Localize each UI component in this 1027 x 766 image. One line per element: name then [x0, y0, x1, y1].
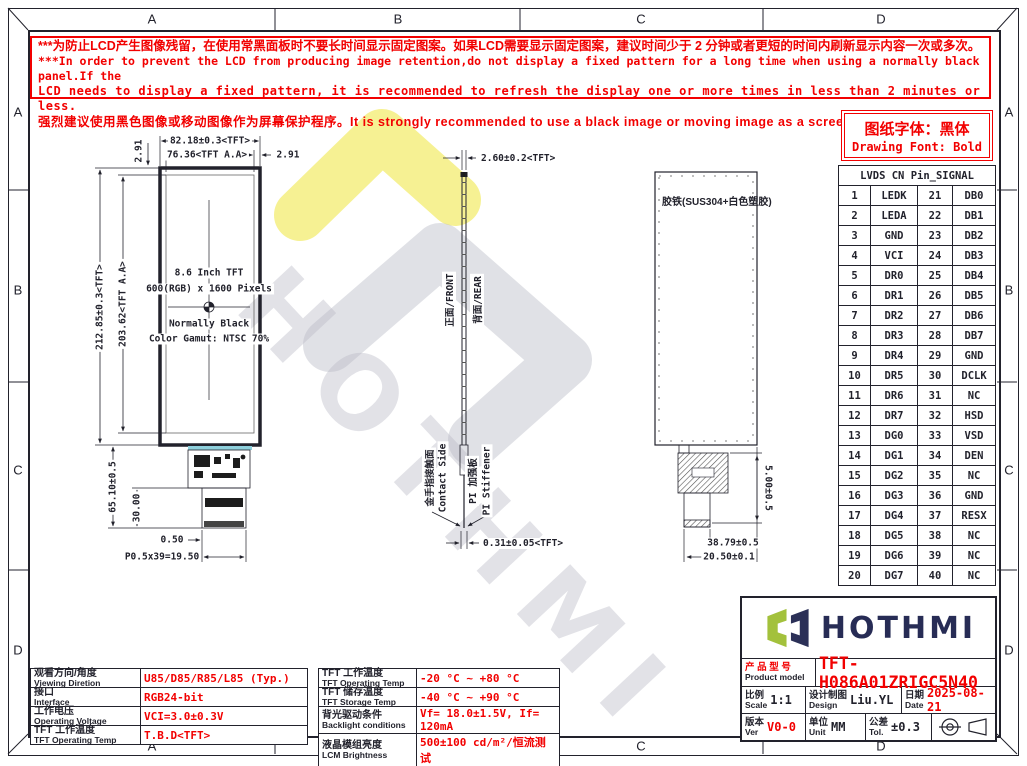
pin-row: 7DR227DB6 — [839, 306, 996, 326]
pin-signal: DR3 — [871, 326, 918, 346]
pin-no: 17 — [839, 506, 871, 526]
pin-no: 32 — [918, 406, 953, 426]
pin-no: 24 — [918, 246, 953, 266]
ver-unit-tol-row: 版本Ver V0-0 单位Unit MM 公差Tol. ±0.3 — [742, 714, 995, 740]
spec-row: TFT 工作温度TFT Operating Temp-20 °C ~ +80 °… — [319, 669, 560, 688]
rear-material-label: 胶铁(SUS304+白色塑胶) — [661, 193, 773, 208]
pin-signal: DG1 — [871, 446, 918, 466]
pin-row: 20DG740NC — [839, 566, 996, 586]
pin-row: 9DR429GND — [839, 346, 996, 366]
font-note-cn: 图纸字体：黑体 — [842, 118, 992, 139]
pin-no: 9 — [839, 346, 871, 366]
pin-no: 11 — [839, 386, 871, 406]
engineering-drawing-page: HOTHMI A B C D A B C D A B C D A B C D — [0, 0, 1027, 766]
pin-no: 6 — [839, 286, 871, 306]
brand-wordmark: HOTHMI — [821, 611, 976, 646]
product-model-value: TFT-H086A01ZRIGC5N40 — [816, 659, 995, 686]
spec-row: 背光驱动条件Backlight conditionsVf= 18.0±1.5V,… — [319, 707, 560, 734]
pin-row: 4VCI24DB3 — [839, 246, 996, 266]
pin-no: 35 — [918, 466, 953, 486]
hothmi-logo-mark-icon — [761, 603, 815, 653]
pin-row: 18DG538NC — [839, 526, 996, 546]
pin-no: 31 — [918, 386, 953, 406]
spec-row: 工作电压Operating VoltageVCI=3.0±0.3V — [31, 707, 308, 726]
pin-no: 30 — [918, 366, 953, 386]
warning-line-1: ***为防止LCD产生图像残留，在使用常黑面板时不要长时间显示固定图案。如果LC… — [38, 39, 983, 54]
pin-no: 2 — [839, 206, 871, 226]
pin-row: 3GND23DB2 — [839, 226, 996, 246]
pin-signal-table: LVDS CN Pin_SIGNAL 1LEDK21DB0 2LEDA22DB1… — [838, 165, 996, 586]
spec-value: RGB24-bit — [141, 688, 308, 707]
date-label-cn: 日期 — [905, 691, 924, 701]
pin-no: 21 — [918, 186, 953, 206]
scale-label-cn: 比例 — [745, 691, 767, 701]
image-retention-warning: ***为防止LCD产生图像残留，在使用常黑面板时不要长时间显示固定图案。如果LC… — [30, 36, 991, 99]
pin-signal: DB5 — [953, 286, 996, 306]
pin-no: 8 — [839, 326, 871, 346]
spec-label-en: LCM Brightness — [322, 751, 413, 760]
pin-signal: DCLK — [953, 366, 996, 386]
pin-signal: VCI — [871, 246, 918, 266]
pin-signal: DG0 — [871, 426, 918, 446]
unit-label-cn: 单位 — [809, 718, 828, 728]
spec-value: T.B.D<TFT> — [141, 726, 308, 745]
spec-row: TFT 工作温度TFT Operating TempT.B.D<TFT> — [31, 726, 308, 745]
dim-fpc-thickness: 0.31±0.05<TFT> — [482, 538, 564, 549]
spec-value: -40 °C ~ +90 °C — [417, 688, 560, 707]
pin-signal: VSD — [953, 426, 996, 446]
spec-value: U85/D85/R85/L85 (Typ.) — [141, 669, 308, 688]
pin-signal: HSD — [953, 406, 996, 426]
dim-thickness: 2.60±0.2<TFT> — [480, 153, 556, 164]
pin-no: 5 — [839, 266, 871, 286]
pin-row: 11DR631NC — [839, 386, 996, 406]
spec-value: 500±100 cd/m²/恒流测试 — [417, 734, 560, 766]
pin-no: 29 — [918, 346, 953, 366]
tol-label-cn: 公差 — [869, 718, 888, 728]
pin-no: 40 — [918, 566, 953, 586]
pin-no: 37 — [918, 506, 953, 526]
spec-row: 接口InterfaceRGB24-bit — [31, 688, 308, 707]
pin-signal: DEN — [953, 446, 996, 466]
spec-label-en: TFT Operating Temp — [34, 736, 137, 745]
scale-label-en: Scale — [745, 701, 767, 710]
product-model-row: 产 品 型 号Product model TFT-H086A01ZRIGC5N4… — [742, 659, 995, 687]
scale-value: 1:1 — [770, 693, 792, 707]
pin-no: 27 — [918, 306, 953, 326]
pin-signal: DG4 — [871, 506, 918, 526]
pin-signal: DR4 — [871, 346, 918, 366]
pin-row: 16DG336GND — [839, 486, 996, 506]
spec-value: -20 °C ~ +80 °C — [417, 669, 560, 688]
pin-no: 12 — [839, 406, 871, 426]
pin-no: 33 — [918, 426, 953, 446]
pin-no: 26 — [918, 286, 953, 306]
pin-no: 15 — [839, 466, 871, 486]
unit-label-en: Unit — [809, 728, 828, 737]
design-value: Liu.YL — [850, 693, 893, 707]
spec-table-middle: TFT 工作温度TFT Operating Temp-20 °C ~ +80 °… — [318, 668, 560, 766]
pin-table-header: LVDS CN Pin_SIGNAL — [839, 166, 996, 186]
pin-signal: GND — [953, 486, 996, 506]
pin-signal: DR2 — [871, 306, 918, 326]
pin-signal: NC — [953, 546, 996, 566]
pin-row: 10DR530DCLK — [839, 366, 996, 386]
spec-value: Vf= 18.0±1.5V, If= 120mA — [417, 707, 560, 734]
spec-row: 观看方向/角度Viewing DiretionU85/D85/R85/L85 (… — [31, 669, 308, 688]
pin-row: 8DR328DB7 — [839, 326, 996, 346]
third-angle-projection-icon — [939, 717, 989, 737]
pin-signal: DB7 — [953, 326, 996, 346]
company-logo: HOTHMI — [742, 598, 995, 659]
pin-signal: DR5 — [871, 366, 918, 386]
pin-signal: GND — [953, 346, 996, 366]
pin-row: 17DG437RESX — [839, 506, 996, 526]
pin-signal: NC — [953, 386, 996, 406]
pin-no: 13 — [839, 426, 871, 446]
spec-label-en: TFT Operating Temp — [322, 679, 413, 688]
pin-signal: DR6 — [871, 386, 918, 406]
pin-row: 12DR732HSD — [839, 406, 996, 426]
pin-table-title: LVDS CN Pin_SIGNAL — [839, 166, 996, 186]
pin-signal: DB6 — [953, 306, 996, 326]
spec-label-en: TFT Storage Temp — [322, 698, 413, 707]
tol-value: ±0.3 — [891, 720, 920, 734]
pin-signal: LEDK — [871, 186, 918, 206]
spec-label-en: Viewing Diretion — [34, 679, 137, 688]
warning-line-2: ***In order to prevent the LCD from prod… — [38, 54, 983, 84]
pin-no: 18 — [839, 526, 871, 546]
pin-signal: DG7 — [871, 566, 918, 586]
product-label-en: Product model — [745, 673, 805, 682]
spec-label-en: Operating Voltage — [34, 717, 137, 726]
pin-signal: DR1 — [871, 286, 918, 306]
pin-no: 19 — [839, 546, 871, 566]
pin-no: 36 — [918, 486, 953, 506]
pin-no: 23 — [918, 226, 953, 246]
pin-no: 20 — [839, 566, 871, 586]
pin-row: 19DG639NC — [839, 546, 996, 566]
pin-signal: NC — [953, 466, 996, 486]
spec-row: 液晶模组亮度LCM Brightness500±100 cd/m²/恒流测试 — [319, 734, 560, 766]
drawing-font-note: 图纸字体：黑体 Drawing Font: Bold — [841, 110, 993, 161]
pin-row: 2LEDA22DB1 — [839, 206, 996, 226]
date-label-en: Date — [905, 701, 924, 710]
pin-signal: DB4 — [953, 266, 996, 286]
pin-no: 28 — [918, 326, 953, 346]
pin-signal: DB3 — [953, 246, 996, 266]
pin-signal: RESX — [953, 506, 996, 526]
pin-row: 1LEDK21DB0 — [839, 186, 996, 206]
spec-row: TFT 储存温度TFT Storage Temp-40 °C ~ +90 °C — [319, 688, 560, 707]
pin-no: 39 — [918, 546, 953, 566]
pin-no: 34 — [918, 446, 953, 466]
pin-signal: NC — [953, 526, 996, 546]
ver-value: V0-0 — [767, 720, 796, 734]
spec-label-en: Interface — [34, 698, 137, 707]
design-label-cn: 设计制图 — [809, 691, 847, 701]
pin-row: 14DG134DEN — [839, 446, 996, 466]
spec-value: VCI=3.0±0.3V — [141, 707, 308, 726]
pin-signal: DR7 — [871, 406, 918, 426]
title-block: HOTHMI 产 品 型 号Product model TFT-H086A01Z… — [740, 596, 997, 742]
pin-signal: DB0 — [953, 186, 996, 206]
pin-signal: DB1 — [953, 206, 996, 226]
pin-row: 5DR025DB4 — [839, 266, 996, 286]
pin-signal: DB2 — [953, 226, 996, 246]
pin-no: 1 — [839, 186, 871, 206]
ver-label-en: Ver — [745, 728, 764, 737]
tol-label-en: Tol. — [869, 728, 888, 737]
pin-row: 13DG033VSD — [839, 426, 996, 446]
pin-no: 22 — [918, 206, 953, 226]
pin-signal: DG3 — [871, 486, 918, 506]
pin-row: 15DG235NC — [839, 466, 996, 486]
font-note-en: Drawing Font: Bold — [842, 140, 992, 154]
pin-signal: DG6 — [871, 546, 918, 566]
pin-no: 3 — [839, 226, 871, 246]
pin-no: 4 — [839, 246, 871, 266]
pin-signal: DR0 — [871, 266, 918, 286]
spec-label-en: Backlight conditions — [322, 721, 413, 730]
pin-no: 10 — [839, 366, 871, 386]
pin-no: 25 — [918, 266, 953, 286]
ver-label-cn: 版本 — [745, 718, 764, 728]
pin-signal: NC — [953, 566, 996, 586]
pin-signal: DG2 — [871, 466, 918, 486]
date-value: 2025-08-21 — [927, 686, 992, 714]
pin-signal: LEDA — [871, 206, 918, 226]
pin-row: 6DR126DB5 — [839, 286, 996, 306]
pin-no: 7 — [839, 306, 871, 326]
scale-design-date-row: 比例Scale 1:1 设计制图Design Liu.YL 日期Date 202… — [742, 687, 995, 714]
pin-signal: GND — [871, 226, 918, 246]
pin-no: 16 — [839, 486, 871, 506]
pin-no: 14 — [839, 446, 871, 466]
pin-no: 38 — [918, 526, 953, 546]
pin-signal: DG5 — [871, 526, 918, 546]
spec-table-left: 观看方向/角度Viewing DiretionU85/D85/R85/L85 (… — [30, 668, 308, 745]
design-label-en: Design — [809, 701, 847, 710]
unit-value: MM — [831, 720, 845, 734]
